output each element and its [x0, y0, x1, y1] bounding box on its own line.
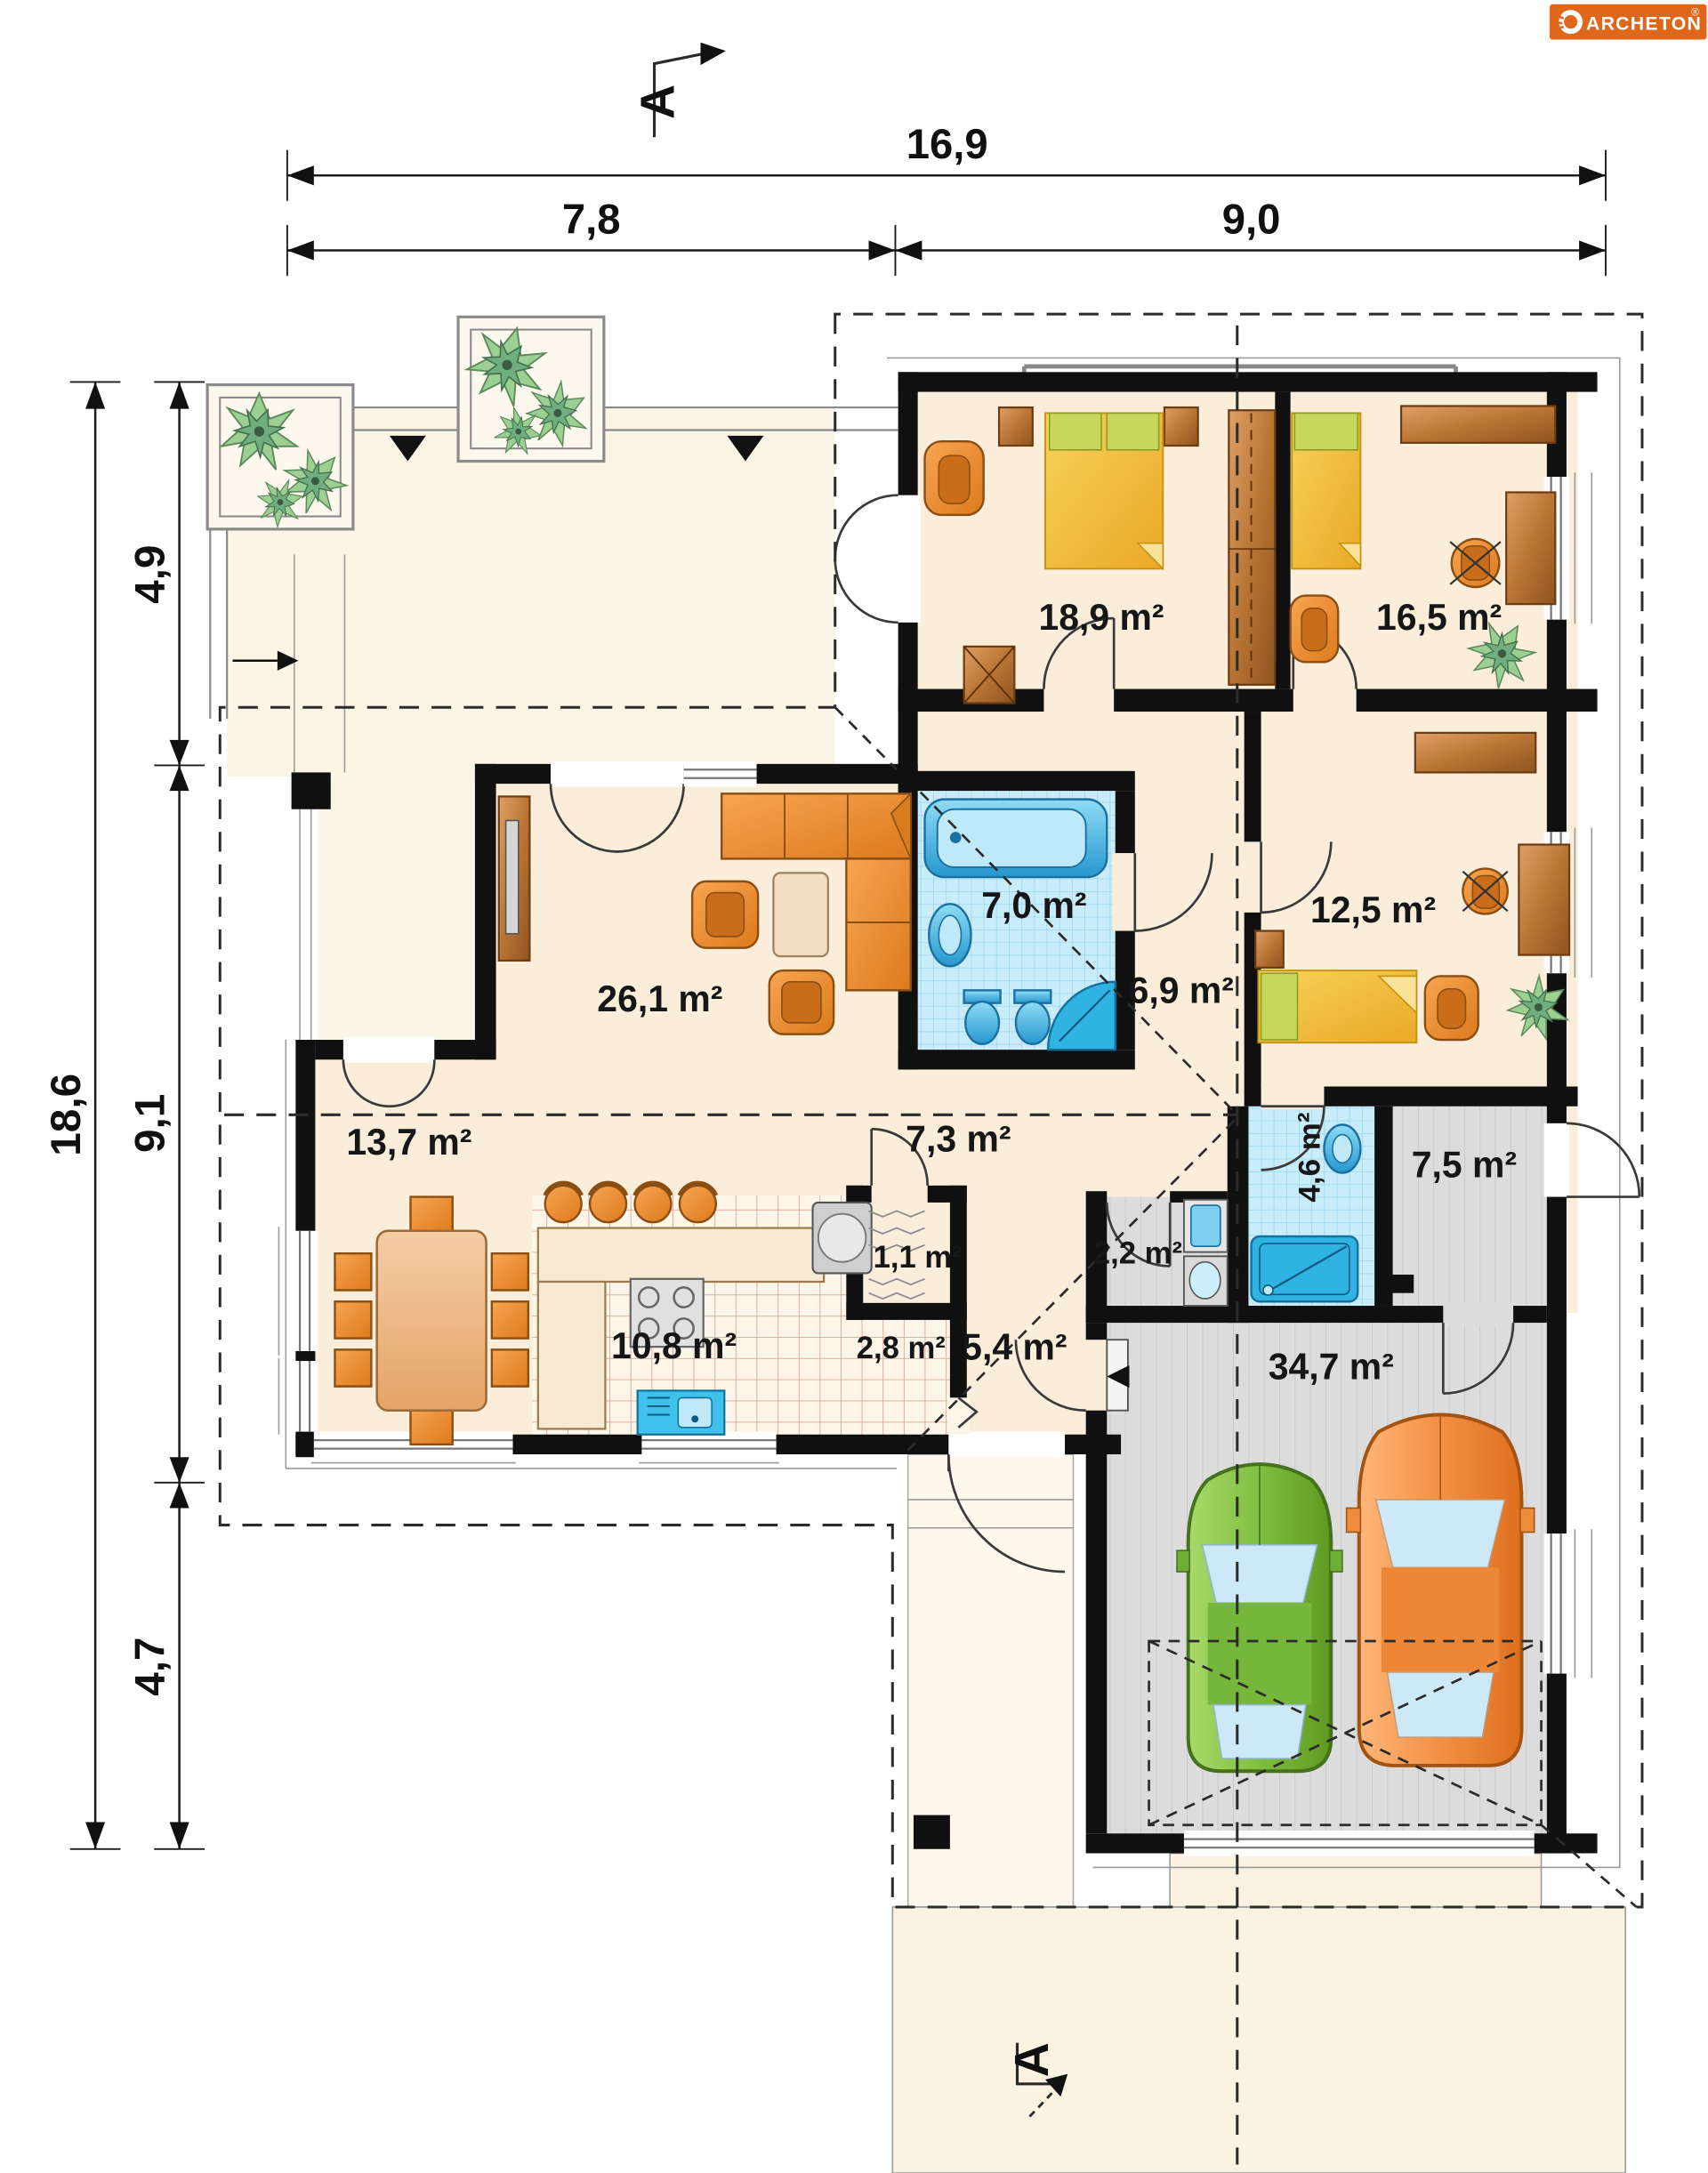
section-letter-bottom: A	[1005, 2042, 1059, 2077]
room-label-entry: 5,4 m²	[962, 1326, 1067, 1367]
french-door-opening	[895, 495, 920, 623]
logo-text: ARCHETON	[1586, 12, 1702, 34]
kitchen-sink	[638, 1390, 725, 1434]
door-opening	[1043, 686, 1114, 714]
door-opening	[1084, 1340, 1110, 1411]
room-label-hall-bedrooms: 6,9 m²	[1129, 970, 1234, 1010]
floor-plan-drawing: 16,9 7,8 9,0 18,6 4,9 9,1 4,7 A A 18,9 m…	[0, 0, 1708, 2173]
driveway	[892, 1907, 1625, 2173]
counter	[538, 1228, 824, 1282]
floor-plan-page: 16,9 7,8 9,0 18,6 4,9 9,1 4,7 A A 18,9 m…	[0, 0, 1708, 2173]
tv	[506, 820, 519, 933]
room-label-bedroom-small: 12,5 m²	[1310, 889, 1436, 930]
dim-left-total: 18,6	[43, 1074, 90, 1156]
coffee-table	[773, 873, 827, 956]
sofa	[721, 793, 911, 858]
room-label-kitchen: 10,8 m²	[611, 1325, 737, 1366]
window	[1544, 1529, 1592, 1678]
window	[639, 1432, 779, 1463]
side-table	[964, 647, 1015, 704]
section-marker-top: A	[632, 43, 726, 138]
back-door-opening	[1544, 1123, 1569, 1197]
dim-left-middle: 9,1	[126, 1094, 173, 1153]
laundry-fixtures	[1184, 1200, 1228, 1306]
logo-registered-mark: ®	[1691, 5, 1699, 18]
chimney-2	[914, 1815, 950, 1849]
desk-chair	[1450, 539, 1501, 587]
desk-chair	[1462, 869, 1507, 914]
chimney	[292, 772, 331, 809]
toilet	[964, 990, 1001, 1043]
french-door-opening	[343, 1037, 434, 1063]
wardrobe	[1401, 406, 1555, 442]
bidet	[1014, 990, 1051, 1043]
room-label-corridor: 2,8 m²	[857, 1331, 946, 1365]
terrace-notch-floor	[318, 777, 477, 1045]
dim-top-left: 7,8	[562, 196, 621, 243]
wardrobe	[1415, 733, 1535, 773]
counter	[538, 1282, 606, 1429]
room-label-pantry: 1,1 m²	[874, 1240, 963, 1275]
dim-left-top: 4,9	[126, 545, 173, 604]
room-label-bathroom-main: 7,0 m²	[981, 885, 1086, 926]
planter-box-2	[458, 317, 604, 461]
window	[684, 761, 757, 787]
room-label-bedroom-right: 16,5 m²	[1376, 597, 1502, 638]
planter-box-1	[207, 385, 358, 531]
dining-table	[377, 1231, 487, 1411]
car-green	[1177, 1464, 1342, 1771]
room-label-utility: 7,5 m²	[1412, 1144, 1517, 1185]
car-orange	[1347, 1414, 1535, 1765]
dim-left-bottom: 4,7	[126, 1637, 173, 1695]
window	[278, 1358, 318, 1435]
french-door-opening	[551, 761, 684, 787]
section-letter-top: A	[632, 85, 685, 119]
door-opening	[872, 1183, 928, 1205]
room-label-living-room: 26,1 m²	[597, 978, 722, 1019]
room-label-bedroom-main: 18,9 m²	[1038, 597, 1164, 638]
fridge	[813, 1203, 872, 1274]
room-label-hall-central: 7,3 m²	[906, 1118, 1011, 1159]
front-door-opening	[948, 1432, 1065, 1458]
room-label-bathroom-small: 4,6 m²	[1293, 1112, 1327, 1202]
brand-logo: ARCHETON ®	[1550, 4, 1706, 40]
room-label-laundry: 2,2 m²	[1093, 1235, 1182, 1270]
window	[278, 1227, 318, 1356]
room-label-garage: 34,7 m²	[1269, 1347, 1394, 1388]
dim-top-right: 9,0	[1222, 196, 1281, 243]
door-opening	[1293, 686, 1357, 714]
desk	[1506, 492, 1555, 604]
dim-top-total: 16,9	[906, 121, 988, 168]
desk	[1519, 845, 1569, 955]
room-label-dining-room: 13,7 m²	[346, 1122, 471, 1163]
section-arrow-icon	[701, 43, 726, 65]
door-opening	[1443, 1303, 1513, 1325]
